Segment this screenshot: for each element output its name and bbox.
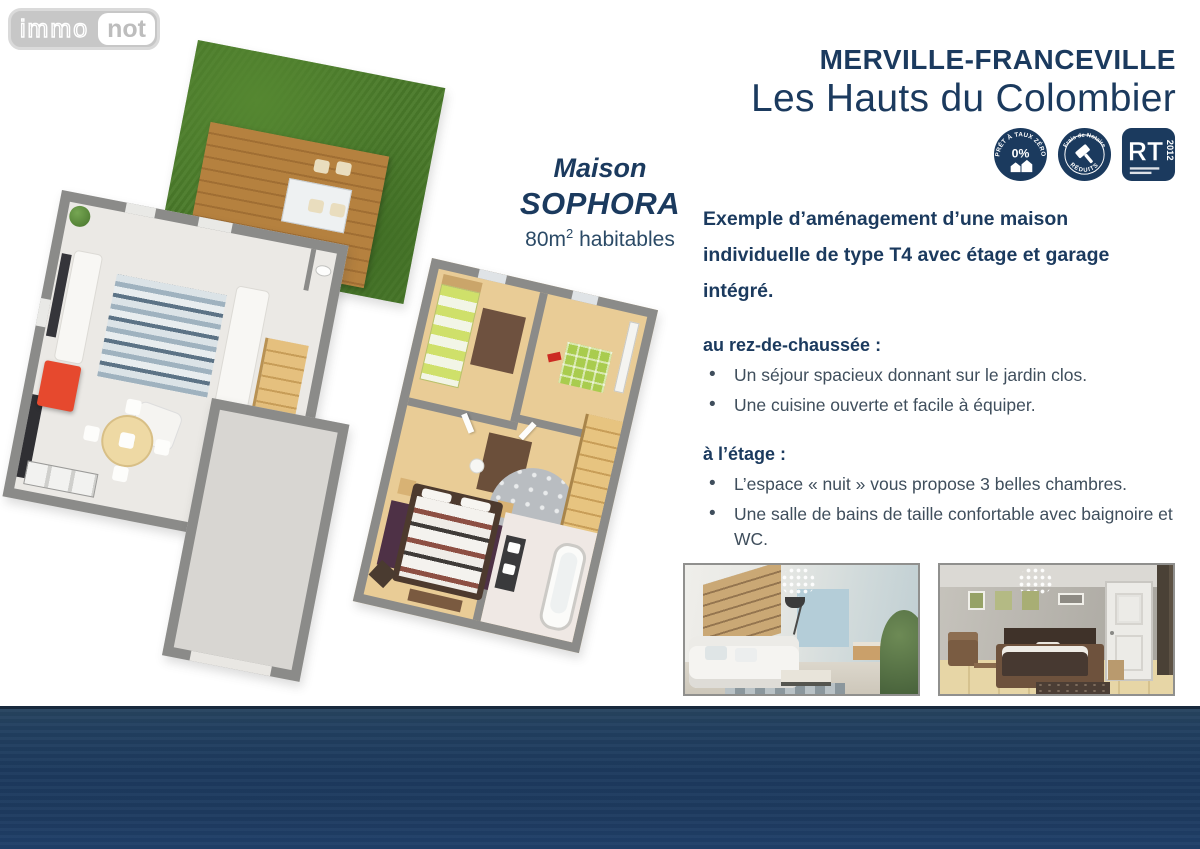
wall-frames xyxy=(968,591,985,610)
bedroom-rug xyxy=(470,308,526,374)
kitchen-appliances xyxy=(23,460,98,497)
play-mat xyxy=(558,342,612,393)
door-panel xyxy=(1115,593,1143,625)
photo-bedroom xyxy=(938,563,1175,696)
badge-row: PRÊT À TAUX ZÉRO 0% Frais de Notaire RÉD… xyxy=(993,127,1176,182)
upper-floor-list: L’espace « nuit » vous propose 3 belles … xyxy=(703,472,1177,552)
ground-floor-list: Un séjour spacieux donnant sur le jardin… xyxy=(703,363,1177,418)
ground-floor-title: au rez-de-chaussée : xyxy=(703,335,1177,356)
ptz-center-text: 0% xyxy=(1012,146,1030,160)
outdoor-chairs xyxy=(307,198,324,214)
bathtub-inner xyxy=(549,551,580,615)
ptz-badge: PRÊT À TAUX ZÉRO 0% xyxy=(993,127,1048,182)
description-intro: Exemple d’aménagement d’une maison indiv… xyxy=(703,201,1177,309)
ground-floor-bullet: Un séjour spacieux donnant sur le jardin… xyxy=(703,363,1177,388)
living-rug xyxy=(97,274,227,397)
area-value: 80m xyxy=(525,228,566,251)
cushions xyxy=(705,646,727,660)
area-suffix: habitables xyxy=(573,228,675,251)
footer-band xyxy=(0,706,1200,849)
door-knob xyxy=(1110,631,1114,635)
upper-floor-plan xyxy=(353,258,658,653)
toy xyxy=(547,352,561,363)
rt-label: RT xyxy=(1128,136,1163,166)
window-gap xyxy=(125,203,156,219)
child-bed xyxy=(419,284,480,388)
description-column: Exemple d’aménagement d’une maison indiv… xyxy=(703,201,1177,556)
chandelier xyxy=(1018,567,1052,597)
toilet xyxy=(314,264,332,278)
bedroom-rug xyxy=(1036,682,1110,694)
ground-floor-section: au rez-de-chaussée : Un séjour spacieux … xyxy=(703,335,1177,418)
window-gap xyxy=(571,291,598,306)
house-model-line1: Maison xyxy=(484,153,716,184)
dining-chairs xyxy=(118,432,136,450)
plant xyxy=(880,610,920,694)
duvet xyxy=(399,496,495,594)
fridge xyxy=(36,360,81,412)
ground-floor-bullet: Une cuisine ouverte et facile à équiper. xyxy=(703,393,1177,418)
rt-year: 2012 xyxy=(1165,140,1175,161)
house-model-label: Maison SOPHORA 80m2 habitables xyxy=(484,153,716,252)
photo-living-room xyxy=(683,563,920,696)
notaire-badge: Frais de Notaire RÉDUITS xyxy=(1057,127,1112,182)
house-model-line2: SOPHORA xyxy=(484,186,716,222)
plant xyxy=(67,204,92,229)
armchair xyxy=(948,632,978,666)
rt2012-badge: RT 2012 xyxy=(1121,127,1176,182)
logo-not-text: not xyxy=(98,13,155,45)
immonot-logo: immo not xyxy=(8,8,160,50)
header: MERVILLE-FRANCEVILLE Les Hauts du Colomb… xyxy=(751,44,1176,121)
shelf xyxy=(614,321,640,393)
upper-floor-bullet: Une salle de bains de taille confortable… xyxy=(703,502,1177,552)
window-gap xyxy=(478,269,507,284)
chandelier xyxy=(781,567,815,597)
garage-door xyxy=(189,651,271,676)
header-residence: Les Hauts du Colombier xyxy=(751,77,1176,121)
house-area: 80m2 habitables xyxy=(484,226,716,252)
nightstand xyxy=(1108,660,1124,680)
duvet xyxy=(1002,646,1088,676)
brochure-page: immo not xyxy=(0,0,1200,849)
wall-frame xyxy=(1058,593,1084,605)
curtain xyxy=(1157,565,1173,675)
logo-immo-text: immo xyxy=(11,15,98,44)
upper-floor-bullet: L’espace « nuit » vous propose 3 belles … xyxy=(703,472,1177,497)
coffee-table xyxy=(781,670,831,686)
upper-floor-title: à l’étage : xyxy=(703,444,1177,465)
header-location: MERVILLE-FRANCEVILLE xyxy=(751,44,1176,76)
upper-floor-section: à l’étage : L’espace « nuit » vous propo… xyxy=(703,444,1177,552)
